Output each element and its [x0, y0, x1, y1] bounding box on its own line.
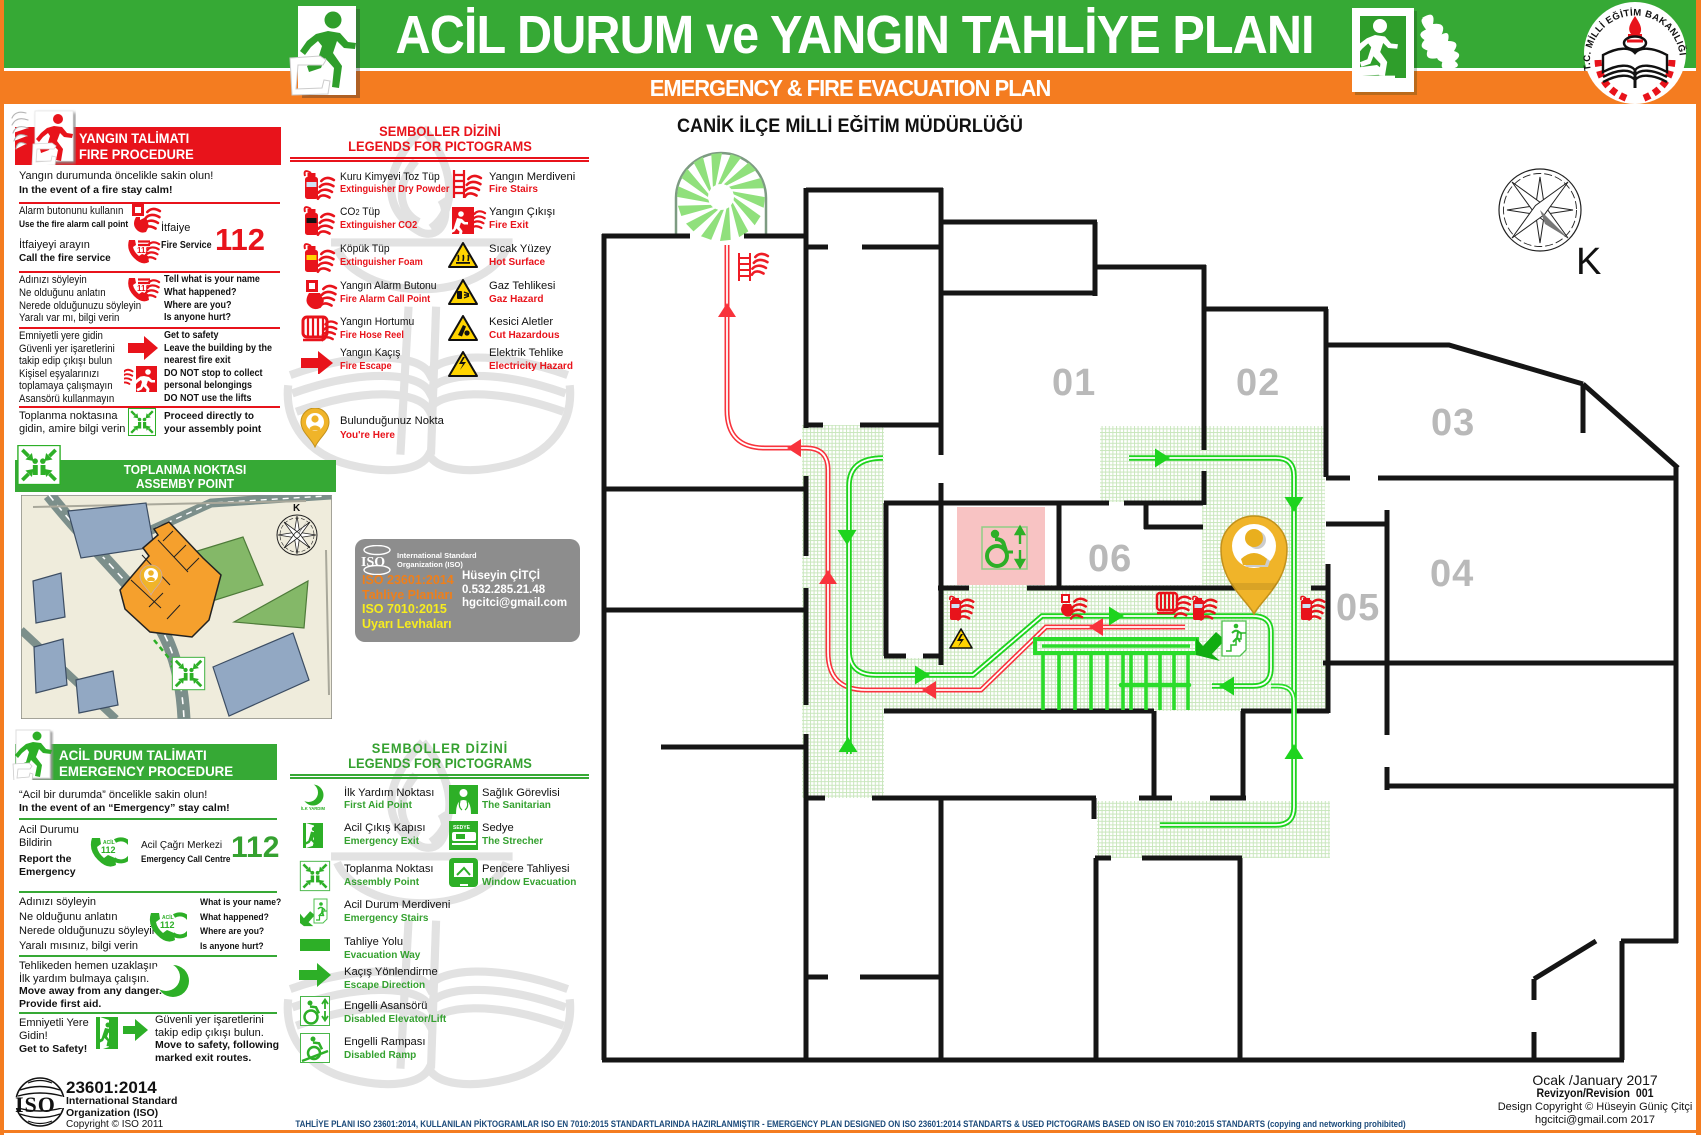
svg-text:K: K — [1576, 241, 1601, 283]
